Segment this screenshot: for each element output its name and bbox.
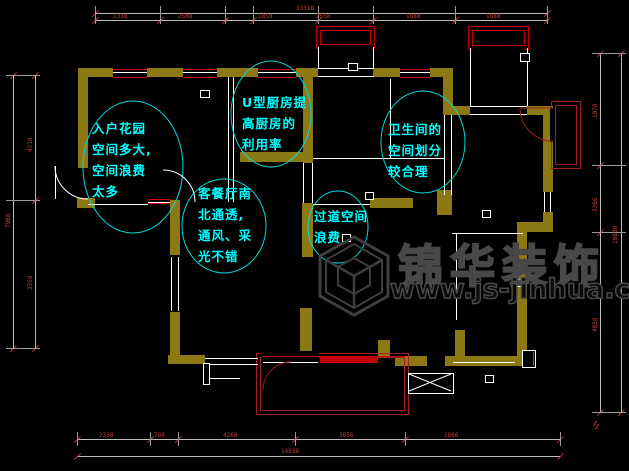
note-line: 通风、采 (198, 225, 252, 246)
note-line: 过道空间 (314, 206, 368, 227)
note-line: 较合理 (388, 161, 442, 182)
annotation-note-bathroom: 卫生间的 空间划分 较合理 (388, 119, 442, 182)
note-line: 客餐厅南 (198, 183, 252, 204)
annotation-note-kitchen: U型厨房提 高厨房的 利用率 (242, 92, 307, 155)
note-line: 太多 (92, 181, 152, 202)
note-line: U型厨房提 (242, 92, 307, 113)
annotation-note-corridor: 过道空间 浪费 (314, 206, 368, 248)
watermark-url: www.js-jinhua.com (390, 274, 629, 305)
annotation-note-living: 客餐厅南 北通透, 通风、采 光不错 (198, 183, 252, 267)
note-line: 光不错 (198, 246, 252, 267)
annotation-note-entry-garden: 入户花园 空间多大, 空间浪费 太多 (92, 118, 152, 202)
note-line: 利用率 (242, 134, 307, 155)
cad-floor-plan-canvas: 33318 1338 2588 1858 2558 1888 1888 1483… (0, 0, 629, 471)
note-line: 空间多大, (92, 139, 152, 160)
door-arc-balcony-right (520, 108, 553, 141)
note-line: 空间划分 (388, 140, 442, 161)
note-line: 入户花园 (92, 118, 152, 139)
note-line: 浪费 (314, 227, 368, 248)
note-line: 卫生间的 (388, 119, 442, 140)
note-line: 空间浪费 (92, 160, 152, 181)
door-arc-balcony-bottom (263, 362, 291, 390)
jinhua-cube-logo-icon (320, 237, 388, 315)
note-line: 北通透, (198, 204, 252, 225)
note-line: 高厨房的 (242, 113, 307, 134)
